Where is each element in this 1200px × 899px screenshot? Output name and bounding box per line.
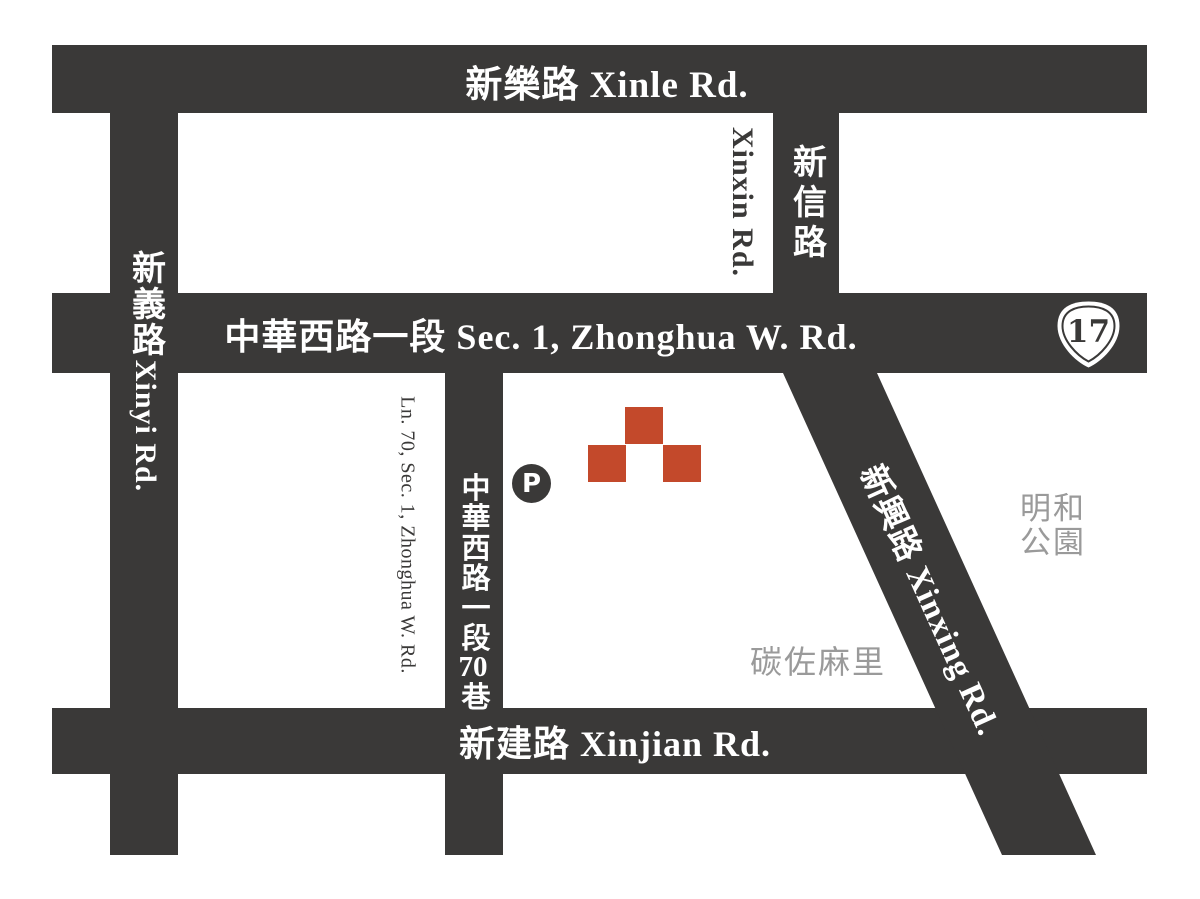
route-number: 17 bbox=[1067, 314, 1110, 350]
xinxin-road-cjk-label: 新信路 bbox=[782, 144, 831, 264]
parking-letter: P bbox=[522, 469, 541, 499]
lane70-cjk-label: 中華西路一段70巷 bbox=[452, 473, 494, 712]
lane70-cjk-prefix: 中華西路一段 bbox=[457, 473, 489, 653]
destination-square-top bbox=[625, 407, 663, 444]
restaurant-name-label: 碳佐麻里 bbox=[750, 637, 886, 683]
lane70-cjk-suffix: 巷 bbox=[457, 682, 489, 712]
xinxin-road-latin-label: Xinxin Rd. bbox=[725, 127, 759, 277]
xinyi-road-cjk-label: 新義路 bbox=[121, 250, 170, 358]
park-label: 明和 公園 bbox=[1020, 492, 1086, 560]
xinjian-road-label: 新建路 Xinjian Rd. bbox=[459, 715, 771, 767]
lane70-latin-label: Ln. 70, Sec. 1, Zhonghua W. Rd. bbox=[396, 396, 419, 674]
xinyi-road-latin-label: Xinyi Rd. bbox=[128, 360, 162, 492]
destination-square-right bbox=[663, 445, 701, 482]
route-17-shield: 17 bbox=[1055, 299, 1122, 370]
park-label-line2: 公園 bbox=[1020, 526, 1086, 560]
destination-square-left bbox=[588, 445, 626, 482]
destination-marker bbox=[588, 407, 701, 483]
lane70-cjk-digits: 70 bbox=[457, 653, 489, 682]
parking-icon: P bbox=[512, 464, 551, 503]
xinle-road-label: 新樂路 Xinle Rd. bbox=[465, 54, 748, 108]
park-label-line1: 明和 bbox=[1020, 492, 1086, 526]
zhonghua-road-label: 中華西路一段 Sec. 1, Zhonghua W. Rd. bbox=[224, 308, 857, 360]
access-map: 新樂路 Xinle Rd. 中華西路一段 Sec. 1, Zhonghua W.… bbox=[0, 0, 1200, 899]
